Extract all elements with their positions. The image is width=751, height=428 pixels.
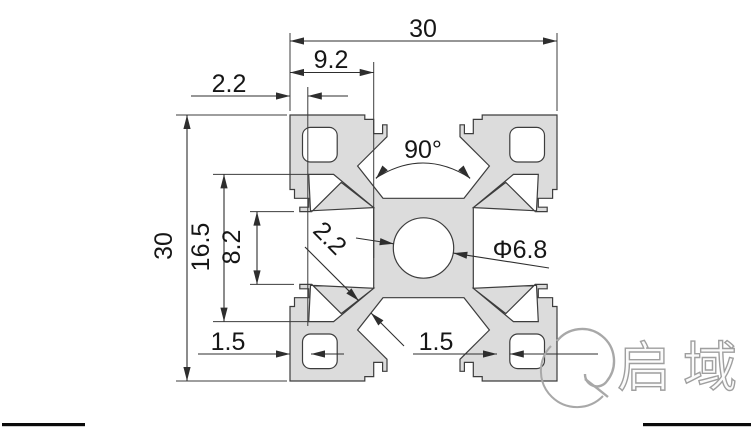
logo-q-mark-swirl-icon xyxy=(557,329,614,386)
sheet-border-line-right xyxy=(643,423,751,426)
dim-label-slot-opening: 8.2 xyxy=(218,230,246,265)
dim-label-bottom-left-wall: 1.5 xyxy=(211,328,246,356)
dim-label-overall-width: 30 xyxy=(409,15,437,43)
dim-label-web-thickness: 2.2 xyxy=(307,216,351,260)
dim-label-slot-angle: 90° xyxy=(404,136,442,164)
drawing-canvas: 30 9.2 2.2 30 16.5 8.2 90° Φ6.8 2.2 1.5 … xyxy=(0,0,751,428)
profile-drawing-svg: 30 9.2 2.2 30 16.5 8.2 90° Φ6.8 2.2 1.5 … xyxy=(0,0,751,428)
dim-label-flange-width: 9.2 xyxy=(314,46,349,74)
dim-label-top-wall: 2.2 xyxy=(212,70,247,98)
logo: 启域 xyxy=(541,329,749,407)
logo-text: 启域 xyxy=(617,338,749,398)
dim-label-center-hole: Φ6.8 xyxy=(493,236,548,264)
dim-label-bottom-right-wall: 1.5 xyxy=(419,328,454,356)
dim-label-overall-height: 30 xyxy=(150,232,178,260)
logo-q-mark-tail-icon xyxy=(585,379,608,397)
dim-line-web-thickness xyxy=(371,313,404,346)
dim-label-cavity-span: 16.5 xyxy=(187,223,215,272)
angle-arc xyxy=(376,163,470,178)
sheet-border-line-left xyxy=(2,423,85,426)
